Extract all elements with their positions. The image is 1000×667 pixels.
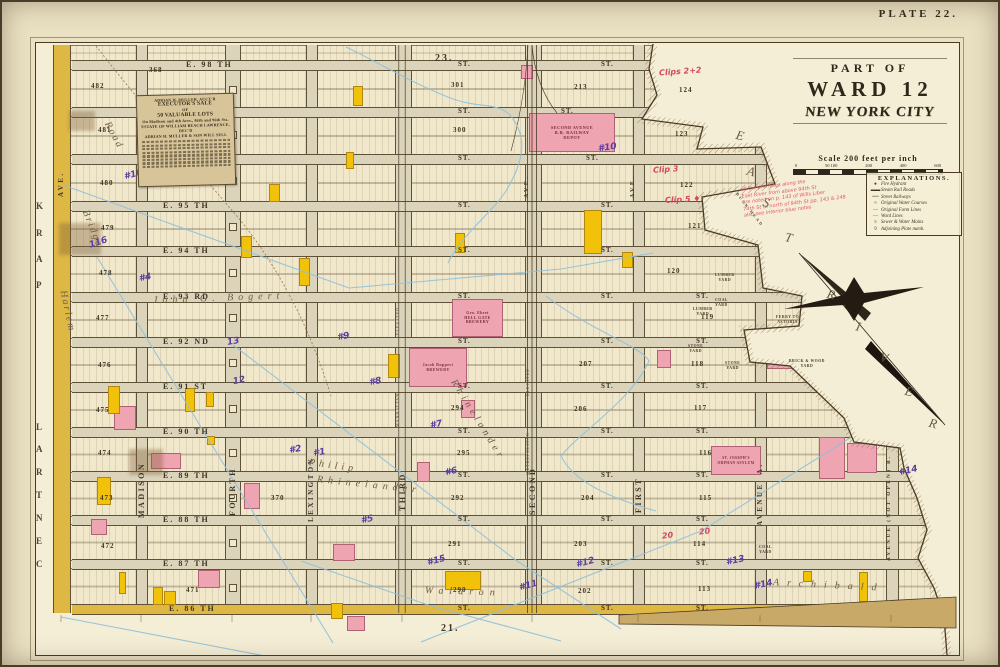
block-number: 292	[451, 494, 465, 502]
street-st-label: ST.	[458, 292, 471, 301]
farm-name-label: Archibald	[773, 577, 885, 594]
east-river-letter: E	[903, 383, 917, 401]
central-park-letter: A	[36, 254, 43, 264]
explanations-legend: EXPLANATIONS. ●Fire Hydrant▬▬Steam Rail …	[866, 172, 962, 236]
block-number: 202	[578, 587, 592, 595]
block-number: 203	[574, 540, 588, 548]
block-number: 477	[96, 314, 110, 322]
street-name-label: E. 94 TH	[163, 246, 210, 255]
central-park-letter: T	[36, 490, 42, 500]
scale-tick: 400	[900, 163, 907, 168]
central-park-letter: N	[36, 513, 43, 523]
handwritten-purple-annotation: #5	[360, 514, 374, 526]
farm-name-label: Harlem	[58, 289, 78, 333]
block-number: 480	[100, 179, 114, 187]
block-number: 113	[698, 585, 711, 593]
elevated-railroad-label: MANHATTAN	[395, 393, 400, 427]
handwritten-purple-annotation: #6	[444, 466, 458, 478]
street-st-label: ST.	[458, 337, 471, 346]
elevated-railroad-label: ELEVATED	[395, 307, 400, 335]
block-number: 117	[694, 404, 707, 412]
scale-tick: 50 100	[825, 163, 837, 168]
scale-tick: 200	[865, 163, 872, 168]
central-park-letter: L	[36, 422, 42, 432]
handwritten-red-annotation: Clips 2+2	[659, 66, 702, 78]
central-park-letter: P	[36, 280, 42, 290]
scale-tick: 600	[934, 163, 941, 168]
block-number: 204	[581, 494, 595, 502]
yard-label: FERRY TO ASTORIA	[776, 315, 799, 324]
block-number: 368	[149, 66, 163, 74]
block-number: 120	[667, 267, 681, 275]
adjoining-plate-top: 23.	[435, 53, 454, 64]
scale-ticks: 050 100200400600	[793, 163, 943, 168]
handwritten-red-annotation: Clip 5 ♦	[665, 194, 701, 205]
block-number: 475	[96, 406, 110, 414]
block-number: 301	[451, 81, 465, 89]
east-river-letter: A	[745, 163, 759, 181]
clipping-fine-print	[143, 164, 231, 168]
handwritten-purple-annotation: #2	[288, 444, 302, 456]
handwritten-purple-annotation: #8	[368, 376, 382, 388]
yard-label: COAL YARD	[759, 545, 772, 554]
avenue-name-label: AVENUE (NOT OPEN) B.	[887, 454, 892, 561]
block-number: 479	[101, 224, 115, 232]
title-part-of: PART OF	[775, 61, 965, 76]
block-number: 295	[457, 449, 471, 457]
avenue-name-label: AVE.	[57, 171, 65, 197]
street-st-label: ST.	[458, 427, 471, 436]
east-river-letter: T	[783, 229, 796, 247]
street-name-label: E. 87 TH	[163, 559, 210, 568]
street-st-label: ST.	[601, 382, 614, 391]
block-number: 207	[579, 360, 593, 368]
farm-name-label: Philip	[308, 457, 358, 475]
east-river-letter: E	[734, 127, 748, 145]
east-river-letter: I	[854, 318, 864, 335]
central-park-letter: R	[36, 228, 43, 238]
block-number: 473	[100, 494, 114, 502]
yard-label: LUMBER YARD	[715, 273, 735, 282]
cartouche-rule	[793, 123, 947, 124]
scale-tick: 0	[795, 163, 797, 168]
street-name-label: E. 95 TH	[163, 201, 210, 210]
street-st-label: ST.	[696, 292, 709, 301]
street-name-label: E. 98 TH	[186, 60, 233, 69]
handwritten-purple-annotation: #14	[753, 578, 773, 592]
block-number: 478	[99, 269, 113, 277]
street-st-label: ST.	[458, 107, 471, 116]
street-st-label: ST.	[601, 292, 614, 301]
block-number: 206	[574, 405, 588, 413]
handwritten-purple-annotation: #9	[336, 331, 350, 343]
block-number: 118	[691, 360, 704, 368]
street-name-label: E. 89 TH	[163, 471, 210, 480]
street-st-label: ST.	[458, 201, 471, 210]
street-st-label: ST.	[696, 471, 709, 480]
street-st-label: ST.	[458, 154, 471, 163]
street-st-label: ST.	[458, 246, 471, 255]
elevated-railroad-label: ELEVATED	[525, 368, 530, 396]
street-name-label: E. 92 ND	[163, 337, 210, 346]
newspaper-clipping: ADRIAN H. MULLER, AUCT'REXECUTOR'S SALEO…	[136, 93, 236, 188]
block-number: 115	[699, 494, 712, 502]
block-number: 213	[574, 83, 588, 91]
handwritten-red-annotation: 20	[662, 530, 674, 540]
street-st-label: ST.	[458, 471, 471, 480]
street-st-label: ST.	[601, 427, 614, 436]
street-st-label: ST.	[696, 427, 709, 436]
street-st-label: ST.	[601, 604, 614, 613]
avenue-name-label: AVE.	[524, 175, 530, 198]
avenue-name-label: AVE.	[630, 175, 636, 198]
legend-item: 9Adjoining Plate numb.	[870, 227, 958, 233]
handwritten-purple-annotation: #4	[138, 272, 152, 284]
central-park-letter: A	[36, 444, 43, 454]
street-name-label: E. 91 ST	[163, 382, 208, 391]
yard-label: STONE YARD	[688, 344, 703, 353]
block-number: 300	[453, 126, 467, 134]
avenue-name-label: MADISON	[137, 462, 146, 518]
east-river-letter: R	[927, 415, 941, 433]
handwritten-purple-annotation: #11	[518, 579, 539, 593]
east-river-letter: R	[825, 286, 839, 304]
block-number: 482	[91, 82, 105, 90]
yard-label: BRICK & WOOD YARD	[789, 359, 825, 368]
central-park-letter: R	[36, 467, 43, 477]
handwritten-purple-annotation: #10	[597, 142, 617, 155]
street-st-label: ST.	[696, 604, 709, 613]
legend-symbol: 9	[870, 227, 881, 233]
farm-name-label: Road	[102, 120, 125, 151]
block-number: 291	[448, 540, 462, 548]
central-park-letter: C	[36, 559, 43, 569]
avenue-name-label: AVENUE A.	[756, 462, 764, 526]
block-number: 472	[101, 542, 115, 550]
block-number: 121	[688, 222, 702, 230]
avenue-name-label: FOURTH	[228, 467, 237, 516]
block-number: 124	[679, 86, 693, 94]
central-park-letter: E	[36, 536, 42, 546]
handwritten-purple-annotation: 13	[226, 336, 240, 348]
block-number: 116	[699, 449, 712, 457]
street-st-label: ST.	[696, 515, 709, 524]
scale-text: Scale 200 feet per inch	[793, 154, 943, 163]
street-st-label: ST.	[458, 60, 471, 69]
street-st-label: ST.	[601, 337, 614, 346]
block-number: 122	[680, 181, 694, 189]
legend-title: EXPLANATIONS.	[870, 175, 958, 182]
street-st-label: ST.	[601, 471, 614, 480]
adjoining-plate-bottom: 21.	[441, 623, 460, 634]
street-st-label: ST.	[458, 559, 471, 568]
block-number: 471	[186, 586, 200, 594]
handwritten-purple-annotation: #13	[725, 554, 745, 568]
atlas-sheet: PLATE 22. SECOND AVENUE R.R. RAILWAY DEP…	[0, 0, 1000, 667]
elevated-railroad-label: METROPOLITAN	[525, 432, 530, 475]
handwritten-red-annotation: Clip 3	[653, 164, 679, 175]
block-number: 114	[693, 540, 706, 548]
handwritten-purple-annotation: #14	[898, 464, 918, 478]
handwritten-purple-annotation: 12	[232, 375, 246, 387]
title-city: NEW YORK CITY	[774, 105, 966, 121]
street-st-label: ST.	[696, 382, 709, 391]
legend-rows: ●Fire Hydrant▬▬Steam Rail Roads══Street …	[870, 182, 958, 233]
street-st-label: ST.	[601, 515, 614, 524]
yard-label: STONE YARD	[725, 361, 740, 370]
street-st-label: ST.	[586, 154, 599, 163]
block-number: 474	[98, 449, 112, 457]
block-number: 476	[98, 361, 112, 369]
street-name-label: E. 88 TH	[163, 515, 210, 524]
street-st-label: ST.	[601, 246, 614, 255]
street-st-label: ST.	[601, 201, 614, 210]
title-ward: WARD 12	[775, 77, 965, 102]
yard-label: COAL YARD	[715, 298, 728, 307]
street-st-label: ST.	[601, 60, 614, 69]
street-st-label: ST.	[601, 559, 614, 568]
street-st-label: ST.	[458, 515, 471, 524]
yard-label: LUMBER YARD	[693, 307, 713, 316]
plate-number-label: PLATE 22.	[879, 8, 958, 20]
street-name-label: E. 86 TH	[169, 604, 216, 613]
handwritten-red-annotation: 20	[699, 526, 711, 536]
title-cartouche: PART OF WARD 12 NEW YORK CITY	[775, 56, 965, 126]
block-number: 123	[675, 130, 689, 138]
east-river-letter: V	[878, 349, 892, 367]
handwritten-purple-annotation: #7	[429, 419, 443, 431]
street-st-label: ST.	[696, 559, 709, 568]
block-number: 370	[271, 494, 285, 502]
cartouche-rule	[793, 58, 947, 59]
handwritten-purple-annotation: #12	[575, 556, 596, 570]
street-name-label: E. 90 TH	[163, 427, 210, 436]
legend-item-label: Adjoining Plate numb.	[881, 227, 924, 233]
farm-name-label: Waldron	[425, 585, 501, 599]
street-st-label: ST.	[561, 107, 574, 116]
street-st-label: ST.	[458, 604, 471, 613]
central-park-letter: K	[36, 201, 43, 211]
handwritten-purple-annotation: #15	[426, 554, 447, 568]
avenue-name-label: FIRST	[634, 477, 643, 513]
